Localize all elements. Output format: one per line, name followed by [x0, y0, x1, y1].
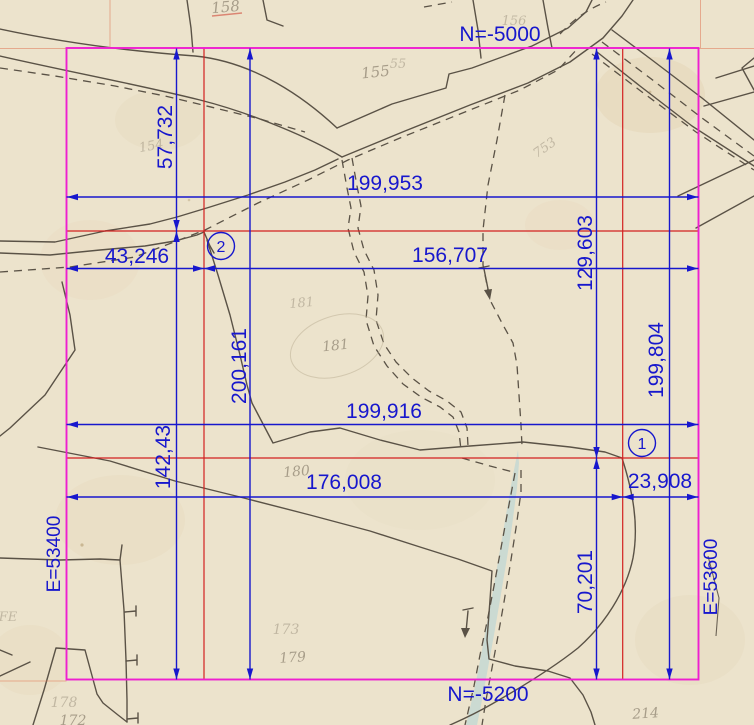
parcel-label-178: 178 [51, 695, 78, 711]
cadastral-map-screenshot: 158 156 155 55 154 753 181 181 180 173 1… [0, 0, 754, 725]
point-1-number: 1 [638, 436, 647, 453]
map-canvas: 158 156 155 55 154 753 181 181 180 173 1… [0, 0, 754, 725]
parcel-label-155: 155 [360, 62, 390, 83]
grid-label-north-top: N=-5000 [459, 23, 540, 46]
dim-label-43246: 43,246 [105, 245, 169, 268]
dim-label-156707: 156,707 [412, 244, 488, 267]
grid-label-east-right: E=53600 [701, 539, 722, 616]
parcel-label-fe: FE [0, 610, 18, 625]
point-2-number: 2 [217, 239, 226, 256]
dim-label-57732: 57,732 [154, 105, 177, 169]
dim-label-199804: 199,804 [645, 322, 668, 398]
dim-label-199916: 199,916 [346, 400, 422, 423]
parcel-label-214: 214 [631, 705, 660, 723]
grid-label-east-left: E=53400 [44, 516, 65, 593]
dim-label-200161: 200,161 [228, 328, 251, 404]
dim-label-176008: 176,008 [306, 471, 382, 494]
dim-label-14243: 142,43 [152, 425, 175, 489]
dim-label-199953: 199,953 [347, 172, 423, 195]
parcel-label-173: 173 [273, 622, 300, 638]
parcel-label-179: 179 [279, 649, 307, 667]
parcel-label-181: 181 [321, 337, 349, 356]
dim-label-129603: 129,603 [574, 215, 597, 291]
paper-background [0, 0, 754, 725]
dim-label-70201: 70,201 [574, 550, 597, 614]
grid-label-north-bottom: N=-5200 [447, 683, 528, 706]
parcel-label-181-faint: 181 [289, 295, 315, 312]
parcel-label-172: 172 [60, 713, 87, 725]
parcel-label-55: 55 [390, 57, 407, 72]
dim-label-23908: 23,908 [628, 470, 692, 493]
